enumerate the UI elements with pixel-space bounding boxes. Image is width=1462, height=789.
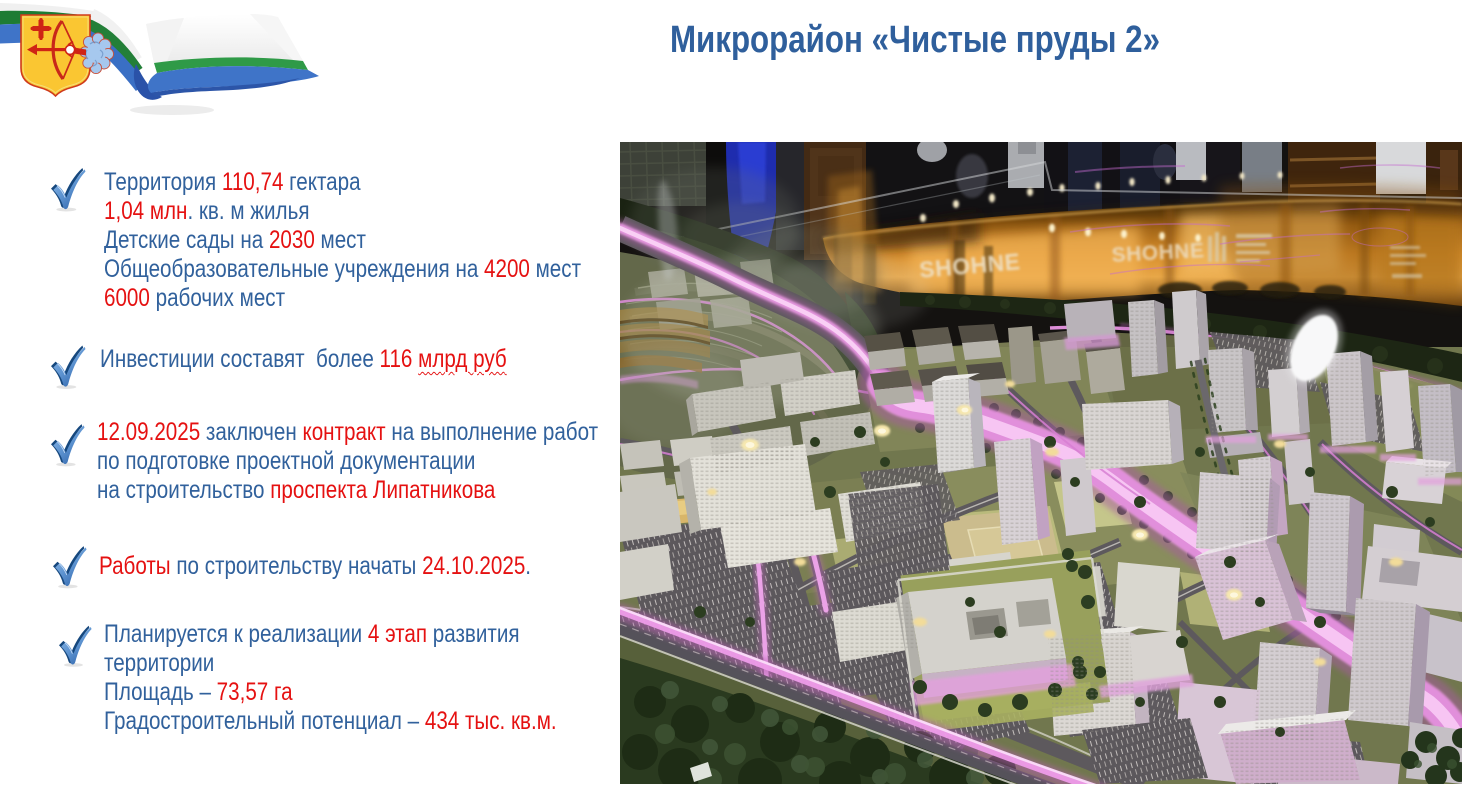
svg-text:SHOHNE: SHOHNE: [1111, 239, 1205, 267]
